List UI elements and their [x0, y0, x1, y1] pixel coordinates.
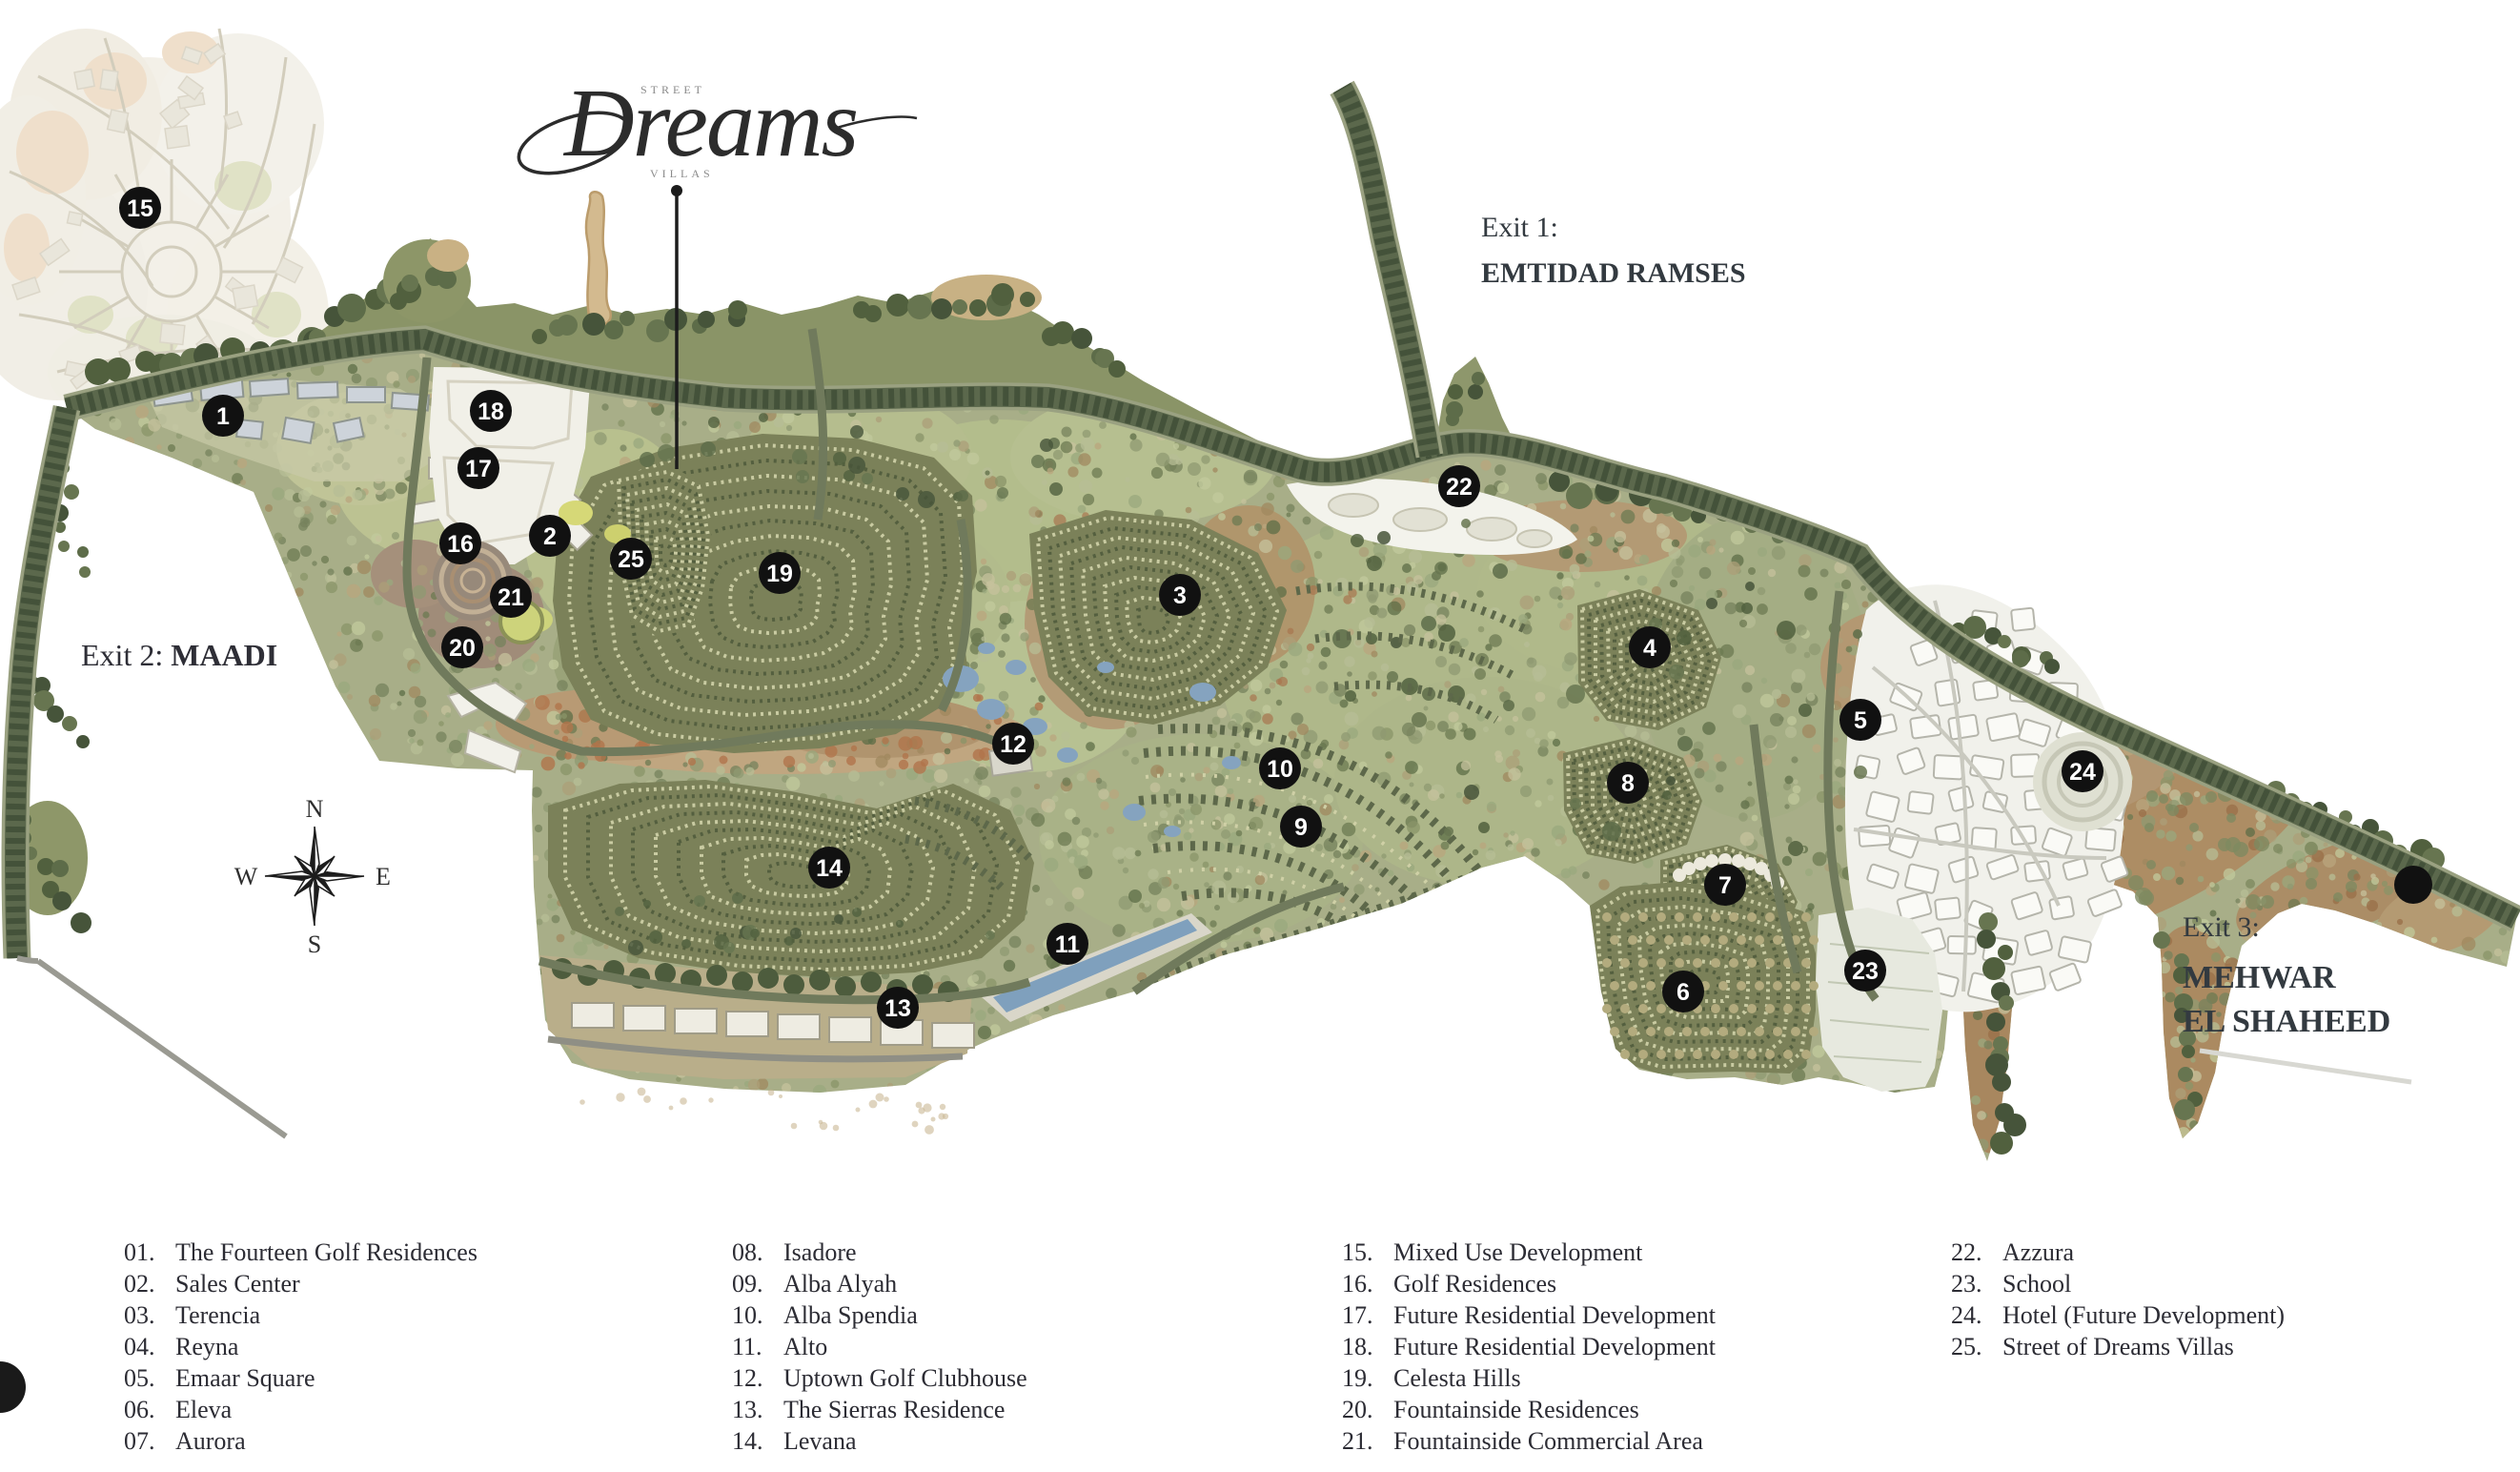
svg-text:Exit 1:: Exit 1:: [1481, 212, 1558, 243]
svg-text:Fountainside Commercial Area: Fountainside Commercial Area: [1393, 1427, 1703, 1455]
svg-text:19: 19: [766, 561, 793, 587]
svg-text:Future Residential Development: Future Residential Development: [1393, 1333, 1717, 1360]
svg-text:23.: 23.: [1951, 1270, 1982, 1298]
svg-text:Street of Dreams Villas: Street of Dreams Villas: [2002, 1333, 2234, 1360]
svg-text:22: 22: [1446, 474, 1473, 501]
svg-text:09.: 09.: [732, 1270, 763, 1298]
svg-text:01.: 01.: [124, 1238, 155, 1266]
svg-text:Azzura: Azzura: [2002, 1238, 2075, 1266]
svg-text:21: 21: [498, 584, 524, 611]
svg-text:EMTIDAD RAMSES: EMTIDAD RAMSES: [1481, 257, 1746, 289]
svg-text:06.: 06.: [124, 1396, 155, 1423]
svg-text:Dreams: Dreams: [562, 70, 857, 177]
svg-text:W: W: [234, 863, 258, 890]
svg-text:12.: 12.: [732, 1364, 763, 1392]
svg-text:7: 7: [1718, 872, 1732, 899]
svg-text:20: 20: [449, 635, 476, 662]
svg-text:14: 14: [816, 855, 843, 882]
svg-text:23: 23: [1852, 958, 1879, 985]
svg-text:05.: 05.: [124, 1364, 155, 1392]
svg-text:07.: 07.: [124, 1427, 155, 1455]
svg-text:1: 1: [216, 403, 230, 430]
svg-text:2: 2: [543, 523, 557, 550]
svg-text:Exit 3:: Exit 3:: [2183, 911, 2260, 943]
svg-text:Celesta Hills: Celesta Hills: [1393, 1364, 1521, 1392]
svg-text:6: 6: [1677, 979, 1690, 1006]
svg-text:Reyna: Reyna: [175, 1333, 239, 1360]
svg-text:25.: 25.: [1951, 1333, 1982, 1360]
svg-text:Isadore: Isadore: [783, 1238, 857, 1266]
svg-text:25: 25: [618, 546, 644, 573]
svg-text:21.: 21.: [1342, 1427, 1373, 1455]
svg-text:22.: 22.: [1951, 1238, 1982, 1266]
svg-text:EL SHAHEED: EL SHAHEED: [2183, 1004, 2390, 1039]
svg-text:Alto: Alto: [783, 1333, 827, 1360]
svg-text:5: 5: [1854, 707, 1867, 734]
svg-text:15: 15: [127, 195, 153, 222]
svg-text:Terencia: Terencia: [175, 1301, 261, 1329]
svg-text:17: 17: [465, 456, 492, 482]
svg-text:STREET: STREET: [640, 83, 705, 96]
svg-text:18.: 18.: [1342, 1333, 1373, 1360]
svg-text:The Fourteen Golf Residences: The Fourteen Golf Residences: [175, 1238, 478, 1266]
svg-text:14.: 14.: [732, 1427, 763, 1455]
svg-text:Future Residential Development: Future Residential Development: [1393, 1301, 1717, 1329]
svg-text:Fountainside Residences: Fountainside Residences: [1393, 1396, 1639, 1423]
svg-text:19.: 19.: [1342, 1364, 1373, 1392]
svg-text:4: 4: [1643, 635, 1656, 662]
svg-text:Exit 2: MAADI: Exit 2: MAADI: [81, 638, 277, 672]
svg-text:11: 11: [1055, 931, 1081, 958]
svg-text:13: 13: [884, 995, 911, 1022]
svg-text:Emaar Square: Emaar Square: [175, 1364, 315, 1392]
svg-text:9: 9: [1294, 814, 1308, 841]
svg-text:04.: 04.: [124, 1333, 155, 1360]
svg-text:The Sierras Residence: The Sierras Residence: [783, 1396, 1005, 1423]
svg-text:18: 18: [478, 399, 504, 425]
svg-text:Aurora: Aurora: [175, 1427, 246, 1455]
svg-text:10: 10: [1267, 756, 1293, 783]
svg-text:School: School: [2002, 1270, 2071, 1298]
svg-text:Eleva: Eleva: [175, 1396, 233, 1423]
svg-text:Mixed Use Development: Mixed Use Development: [1393, 1238, 1643, 1266]
svg-text:E: E: [376, 863, 391, 890]
svg-text:S: S: [308, 930, 321, 958]
svg-text:15.: 15.: [1342, 1238, 1373, 1266]
svg-text:10.: 10.: [732, 1301, 763, 1329]
svg-text:20.: 20.: [1342, 1396, 1373, 1423]
svg-text:Sales Center: Sales Center: [175, 1270, 300, 1298]
svg-text:N: N: [306, 795, 324, 823]
svg-text:12: 12: [1000, 731, 1026, 758]
svg-text:VILLAS: VILLAS: [650, 167, 714, 180]
svg-text:16: 16: [447, 531, 474, 558]
svg-text:03.: 03.: [124, 1301, 155, 1329]
svg-text:24.: 24.: [1951, 1301, 1982, 1329]
svg-text:13.: 13.: [732, 1396, 763, 1423]
svg-text:02.: 02.: [124, 1270, 155, 1298]
svg-text:Hotel (Future Development): Hotel (Future Development): [2002, 1301, 2285, 1329]
svg-text:8: 8: [1621, 770, 1635, 797]
svg-text:Uptown Golf Clubhouse: Uptown Golf Clubhouse: [783, 1364, 1027, 1392]
svg-text:3: 3: [1173, 583, 1187, 609]
svg-text:11.: 11.: [732, 1333, 762, 1360]
svg-text:Alba Spendia: Alba Spendia: [783, 1301, 918, 1329]
svg-text:16.: 16.: [1342, 1270, 1373, 1298]
svg-text:17.: 17.: [1342, 1301, 1373, 1329]
svg-text:24: 24: [2069, 759, 2096, 786]
svg-text:MEHWAR: MEHWAR: [2183, 960, 2336, 995]
svg-text:08.: 08.: [732, 1238, 763, 1266]
svg-text:Alba Alyah: Alba Alyah: [783, 1270, 897, 1298]
svg-text:Golf Residences: Golf Residences: [1393, 1270, 1556, 1298]
svg-text:Levana: Levana: [783, 1427, 857, 1455]
